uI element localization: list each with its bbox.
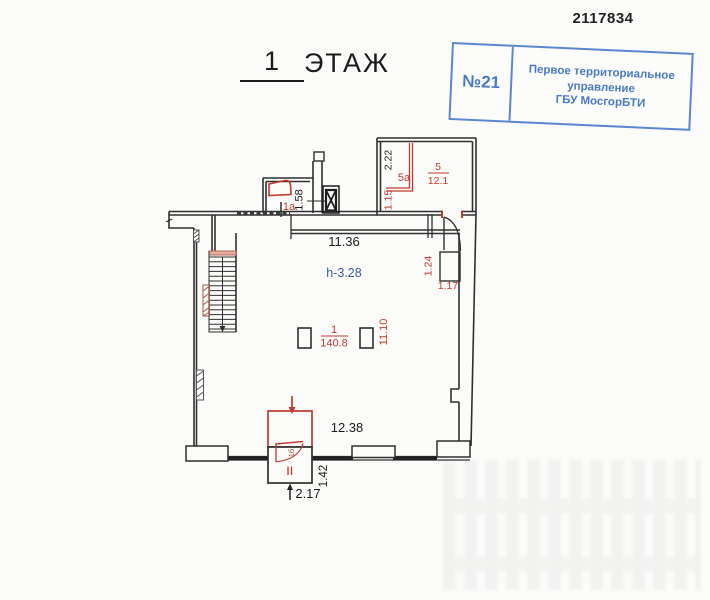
dim-1-42: 1.42 <box>318 465 330 487</box>
room-5a-label: 5а <box>398 172 411 184</box>
elevator-icon <box>323 186 339 213</box>
wall-pilaster-hatch-2 <box>197 370 204 400</box>
dim-2-17: 2.17 <box>295 486 320 501</box>
staircase <box>209 251 236 332</box>
scanned-floor-plan-page: 2117834 1ЭТАЖ №21 Первое территориальное… <box>0 0 710 600</box>
watermark <box>443 460 701 590</box>
dim-11-36: 11.36 <box>328 234 360 249</box>
stair-landing-strip <box>209 251 236 255</box>
wall-pilaster-hatch-3 <box>194 230 200 242</box>
dim-1-58: 1.58 <box>294 189 306 210</box>
dim-1-15: 1.15 <box>383 190 395 211</box>
bottom-left-corner-block <box>186 446 228 461</box>
room-1-number: 1 <box>331 324 337 336</box>
dim-2-22: 2.22 <box>383 150 395 171</box>
bottom-right-corner-block <box>437 441 470 457</box>
porch-block <box>352 446 395 458</box>
room-5-area: 12.1 <box>428 175 449 187</box>
dim-1-17: 1.17 <box>438 280 459 292</box>
dim-217-arrow <box>287 484 293 501</box>
dim-11-10: 11.10 <box>378 319 390 346</box>
room-1b-label: 1б <box>287 449 296 457</box>
room-1-area: 140.8 <box>320 338 348 350</box>
dim-12-38: 12.38 <box>331 420 364 435</box>
room-1a-label: 1а <box>283 201 296 213</box>
height-mark: h-3.28 <box>326 266 361 280</box>
dim-1-24: 1.24 <box>423 256 435 277</box>
room-5-number: 5 <box>435 161 441 173</box>
